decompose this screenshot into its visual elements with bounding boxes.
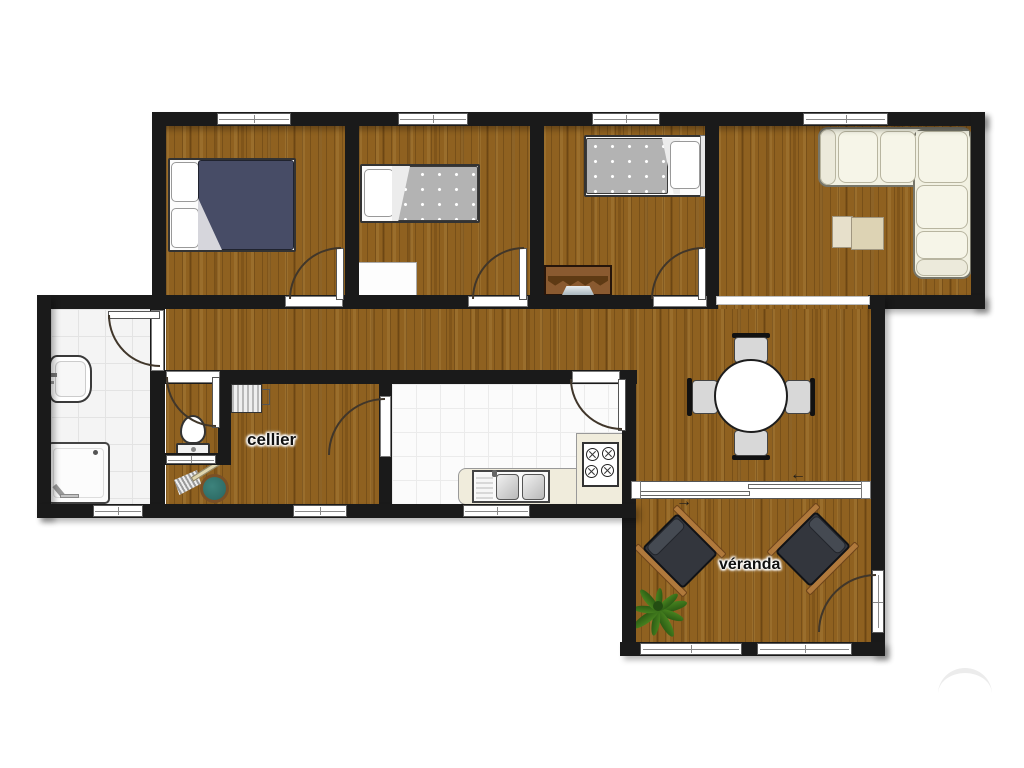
sofa-armrest (820, 129, 836, 185)
veranda-label: véranda (719, 556, 780, 574)
duvet (396, 166, 478, 221)
wall (345, 126, 359, 296)
window (398, 113, 468, 125)
threshold (716, 296, 870, 305)
wall (152, 112, 166, 309)
window (592, 113, 660, 125)
sink-basin (522, 474, 545, 500)
shower-handle-bar (60, 494, 79, 498)
window (93, 505, 143, 517)
stove-burner (601, 464, 614, 477)
bathroom-sink-inner (55, 361, 86, 397)
potted-plant (632, 578, 690, 640)
dining-table (714, 359, 788, 433)
pillow (670, 141, 700, 189)
sliding-door-panel (748, 484, 862, 489)
sofa-cushion (916, 231, 968, 259)
radiator (231, 384, 262, 413)
radiator-bracket (262, 389, 270, 405)
sofa-cushion (918, 131, 968, 183)
slide-direction-arrow: → (676, 494, 692, 510)
rug (355, 262, 417, 296)
watermark-arc (938, 668, 992, 694)
sink-faucet (492, 470, 497, 477)
sofa-cushion (880, 131, 916, 183)
coffee-table (832, 216, 853, 248)
pillow (171, 162, 199, 202)
stove-burner (586, 448, 599, 461)
window (463, 505, 530, 517)
wall (37, 295, 718, 309)
wall (37, 295, 51, 518)
pillow (171, 208, 199, 248)
wall (705, 126, 719, 296)
sliding-door-jamb (631, 481, 641, 499)
dining-chair (734, 430, 768, 456)
sink-basin (496, 474, 519, 500)
window (293, 505, 347, 517)
sliding-door-jamb (861, 481, 871, 499)
plant-center (653, 601, 663, 611)
window (757, 643, 852, 655)
sofa-cushion (838, 131, 878, 183)
cellier-label: cellier (247, 430, 296, 450)
window (217, 113, 291, 125)
toilet-button (191, 447, 196, 452)
sofa-armrest (916, 259, 968, 276)
window (166, 455, 216, 464)
coffee-table (851, 217, 884, 250)
wall (868, 295, 985, 309)
wall (530, 126, 544, 296)
wall (971, 112, 985, 309)
stove-burner (585, 465, 598, 478)
bucket (200, 474, 229, 503)
floor-plan: ← → cellier véranda (0, 0, 1024, 768)
pillow (364, 169, 394, 217)
duvet (586, 138, 668, 194)
dresser-glass (562, 286, 594, 295)
sink-drainboard (476, 474, 493, 499)
slide-direction-arrow: ← (790, 467, 806, 483)
sliding-door-panel (638, 491, 750, 496)
shower-drain (93, 450, 98, 455)
dining-chair (785, 380, 811, 414)
stove-burner (602, 447, 615, 460)
window (640, 643, 742, 655)
sofa-cushion (916, 185, 968, 229)
window (803, 113, 888, 125)
